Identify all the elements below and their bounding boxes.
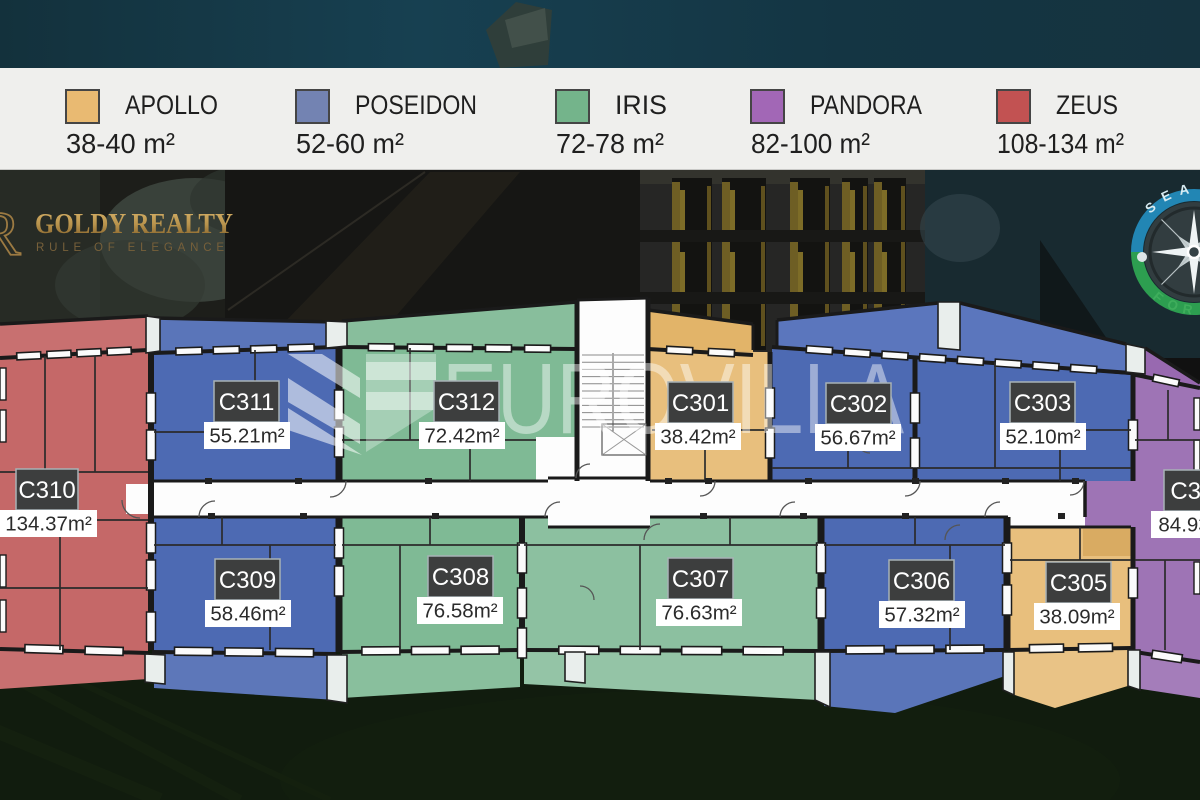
svg-text:C302: C302 bbox=[830, 391, 887, 418]
svg-text:APOLLO: APOLLO bbox=[125, 90, 218, 120]
svg-text:55.21m²: 55.21m² bbox=[209, 425, 284, 448]
svg-text:84.93m²: 84.93m² bbox=[1158, 514, 1200, 537]
svg-text:R: R bbox=[0, 198, 21, 269]
svg-text:72-78 m²: 72-78 m² bbox=[556, 128, 664, 159]
svg-text:56.67m²: 56.67m² bbox=[820, 427, 895, 450]
svg-text:C306: C306 bbox=[893, 568, 950, 595]
svg-text:38.09m²: 38.09m² bbox=[1039, 606, 1114, 629]
svg-text:72.42m²: 72.42m² bbox=[424, 425, 499, 448]
svg-text:134.37m²: 134.37m² bbox=[5, 513, 92, 536]
svg-text:GOLDY REALTY: GOLDY REALTY bbox=[35, 209, 233, 240]
svg-text:RULE OF ELEGANCE: RULE OF ELEGANCE bbox=[36, 242, 230, 254]
svg-text:C310: C310 bbox=[18, 477, 75, 504]
svg-text:108-134 m²: 108-134 m² bbox=[997, 128, 1124, 159]
svg-text:C301: C301 bbox=[672, 390, 729, 417]
svg-text:76.58m²: 76.58m² bbox=[422, 600, 497, 623]
svg-text:C303: C303 bbox=[1014, 390, 1071, 417]
svg-text:C304: C304 bbox=[1170, 478, 1200, 505]
svg-text:58.46m²: 58.46m² bbox=[210, 603, 285, 626]
svg-text:ZEUS: ZEUS bbox=[1056, 90, 1118, 120]
svg-text:76.63m²: 76.63m² bbox=[661, 602, 736, 625]
svg-text:38.42m²: 38.42m² bbox=[660, 426, 735, 449]
svg-text:POSEIDON: POSEIDON bbox=[355, 90, 477, 120]
svg-text:57.32m²: 57.32m² bbox=[884, 604, 959, 627]
svg-text:52.10m²: 52.10m² bbox=[1005, 426, 1080, 449]
svg-text:C307: C307 bbox=[672, 566, 729, 593]
svg-text:C311: C311 bbox=[219, 389, 275, 416]
svg-text:C312: C312 bbox=[438, 389, 495, 416]
svg-text:PANDORA: PANDORA bbox=[810, 90, 922, 120]
svg-text:C308: C308 bbox=[432, 564, 489, 591]
svg-text:C305: C305 bbox=[1050, 570, 1107, 597]
svg-text:38-40 m²: 38-40 m² bbox=[66, 128, 175, 159]
svg-text:82-100 m²: 82-100 m² bbox=[751, 128, 870, 159]
svg-text:C309: C309 bbox=[219, 567, 276, 594]
svg-text:IRIS: IRIS bbox=[615, 90, 667, 120]
svg-text:52-60 m²: 52-60 m² bbox=[296, 128, 404, 159]
